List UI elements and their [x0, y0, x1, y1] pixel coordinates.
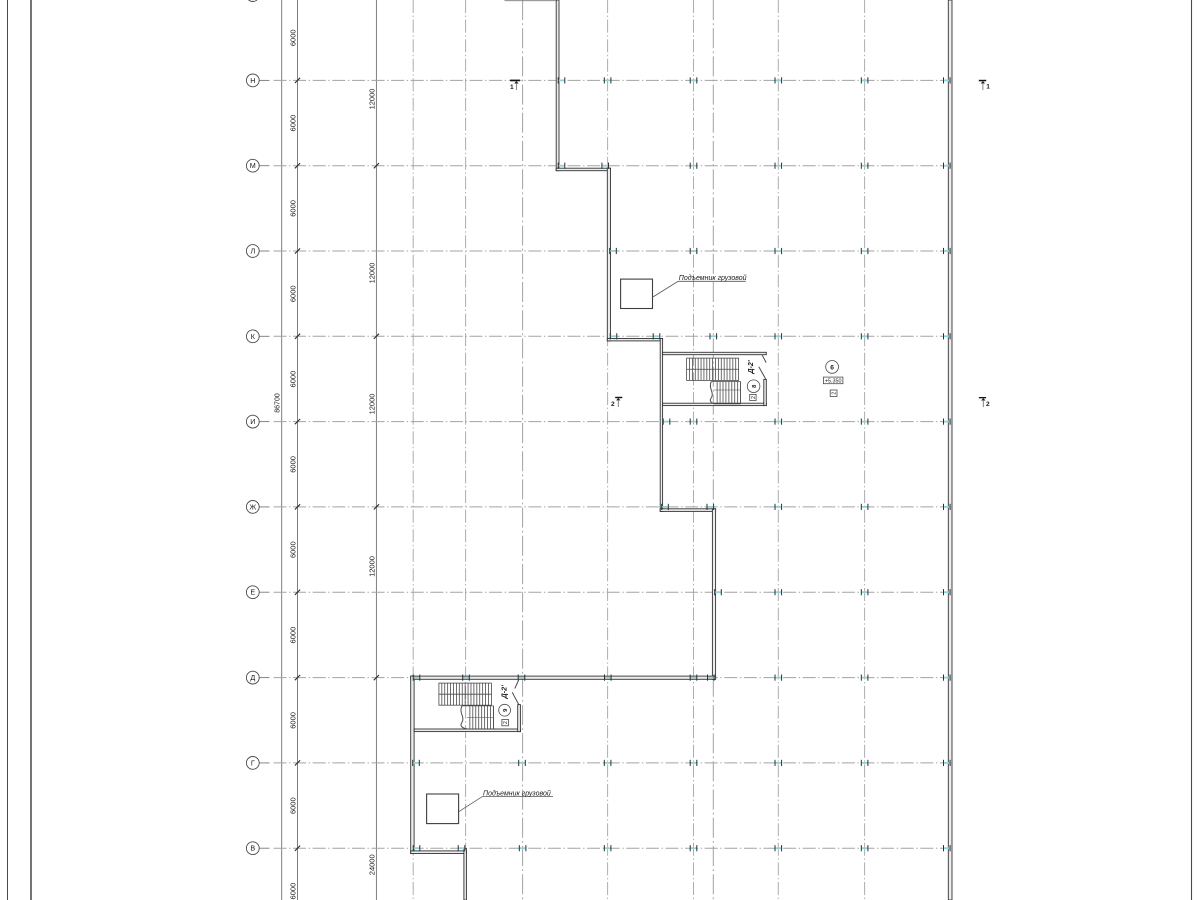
svg-text:6: 6: [830, 364, 834, 371]
svg-text:2: 2: [832, 392, 838, 395]
svg-text:6000: 6000: [289, 627, 298, 644]
svg-text:2: 2: [986, 401, 990, 408]
svg-text:6000: 6000: [289, 456, 298, 473]
svg-text:6000: 6000: [289, 371, 298, 388]
svg-text:Е: Е: [250, 588, 255, 597]
svg-text:12000: 12000: [367, 556, 376, 577]
svg-text:Л: Л: [250, 247, 255, 256]
svg-text:6000: 6000: [289, 115, 298, 132]
svg-text:6000: 6000: [289, 285, 298, 302]
svg-text:1: 1: [986, 83, 990, 90]
svg-text:86700: 86700: [275, 393, 282, 413]
svg-text:6000: 6000: [289, 797, 298, 814]
svg-text:Г: Г: [251, 758, 255, 767]
svg-text:1: 1: [510, 84, 514, 91]
svg-text:М: М: [250, 161, 256, 170]
svg-text:Д: Д: [250, 673, 255, 682]
svg-text:Подъемник грузовой: Подъемник грузовой: [679, 274, 747, 282]
svg-text:6000: 6000: [289, 712, 298, 729]
svg-text:12000: 12000: [368, 263, 377, 284]
svg-text:+5.350: +5.350: [825, 378, 842, 384]
svg-text:6000: 6000: [289, 200, 298, 217]
svg-text:12000: 12000: [368, 89, 377, 110]
svg-text:24000: 24000: [367, 854, 376, 875]
svg-text:Д-2': Д-2': [499, 685, 508, 700]
svg-text:В: В: [250, 844, 255, 853]
svg-text:2: 2: [611, 401, 615, 408]
svg-text:Подъемник грузовой: Подъемник грузовой: [483, 790, 551, 798]
svg-text:Ж: Ж: [249, 502, 256, 511]
svg-text:И: И: [250, 417, 255, 426]
svg-text:6000: 6000: [289, 29, 298, 46]
svg-text:2: 2: [751, 396, 757, 399]
svg-text:6000: 6000: [289, 541, 298, 558]
svg-text:6000: 6000: [289, 883, 298, 900]
svg-text:2: 2: [503, 721, 509, 724]
svg-text:Д-2': Д-2': [746, 360, 755, 375]
svg-text:12000: 12000: [368, 394, 377, 415]
svg-text:Н: Н: [250, 76, 255, 85]
